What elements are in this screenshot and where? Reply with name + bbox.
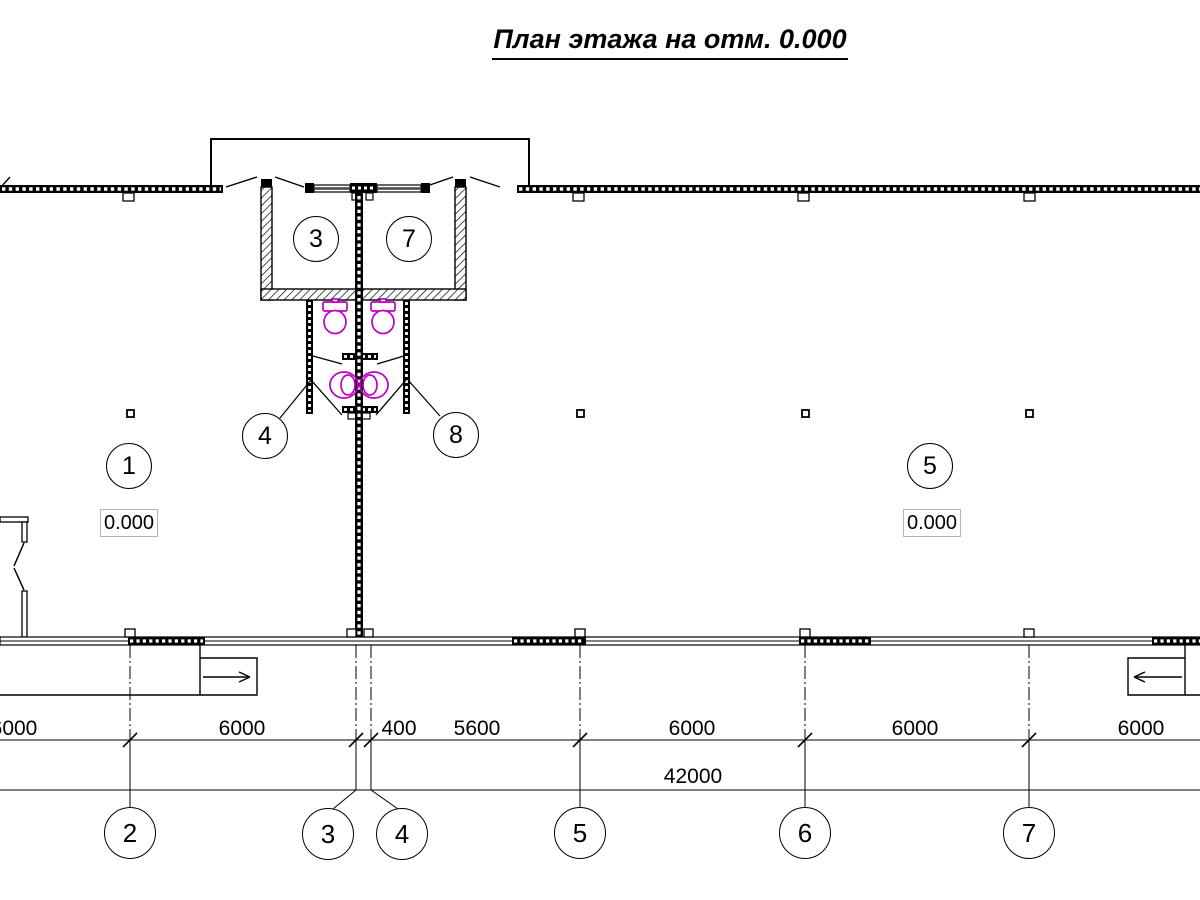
bottom-wall-column-tabs: [125, 629, 1034, 637]
left-entrance-wall: [0, 517, 28, 637]
toilet-block-walls: [261, 179, 466, 300]
callout-bubble-8: 8: [433, 412, 479, 458]
room-bubble-5-label: 5: [923, 452, 937, 481]
axis-bubble-2: 2: [104, 807, 156, 859]
callout-bubble-8-label: 8: [449, 421, 463, 450]
dim-label-2: 6000: [219, 718, 266, 739]
callout-bubble-4-label: 4: [258, 422, 272, 451]
dim-label-4: 5600: [454, 718, 501, 739]
axis-bubble-5: 5: [554, 807, 606, 859]
room-bubble-5: 5: [907, 443, 953, 489]
room-bubble-1-label: 1: [122, 452, 136, 481]
elevation-box-right: 0.000: [903, 509, 961, 537]
top-wall-column-tabs: [123, 193, 1035, 201]
dim-label-6: 6000: [892, 718, 939, 739]
room-bubble-3-label: 3: [309, 225, 323, 254]
axis-bubble-7: 7: [1003, 807, 1055, 859]
axis-bubble-4: 4: [376, 808, 428, 860]
top-wall-left: [0, 185, 223, 193]
drawing-title: План этажа на отм. 0.000: [492, 24, 848, 60]
room-bubble-7: 7: [386, 216, 432, 262]
axis-bubble-6: 6: [779, 807, 831, 859]
toilet-icon: [323, 299, 347, 334]
left-porch: [0, 645, 257, 695]
dim-label-5: 6000: [669, 718, 716, 739]
room-bubble-1: 1: [106, 443, 152, 489]
floor-plan-canvas: { "title": "План этажа на отм. 0.000", "…: [0, 0, 1200, 900]
top-wall-right: [517, 185, 1200, 193]
toilet-icon: [371, 299, 395, 334]
dim-label-1: 6000: [0, 718, 37, 739]
axis-bubble-6-label: 6: [798, 818, 812, 849]
grid-axis-lines-lower: [130, 740, 1029, 809]
canopy-outline: [211, 139, 529, 185]
elevation-value-right: 0.000: [907, 512, 957, 535]
dim-label-total: 42000: [664, 766, 722, 787]
sink-icon: [330, 372, 358, 398]
right-porch: [1128, 645, 1200, 695]
toilet-block-windows: [305, 183, 430, 200]
axis-bubble-3-label: 3: [321, 819, 335, 850]
dimension-lines: [0, 740, 1200, 790]
room-bubble-7-label: 7: [402, 225, 416, 254]
axis-bubble-7-label: 7: [1022, 818, 1036, 849]
axis-bubble-4-label: 4: [395, 819, 409, 850]
sink-icon: [360, 372, 388, 398]
axis-bubble-5-label: 5: [573, 818, 587, 849]
plan-linework: [0, 0, 1200, 900]
callout-bubble-4: 4: [242, 413, 288, 459]
axis-bubble-2-label: 2: [123, 818, 137, 849]
dim-label-3: 400: [381, 718, 416, 739]
room-bubble-3: 3: [293, 216, 339, 262]
axis-bubble-3: 3: [302, 808, 354, 860]
dim-label-7: 6000: [1118, 718, 1165, 739]
bottom-wall: [0, 637, 1200, 645]
elevation-value-left: 0.000: [104, 512, 154, 535]
elevation-box-left: 0.000: [100, 509, 158, 537]
